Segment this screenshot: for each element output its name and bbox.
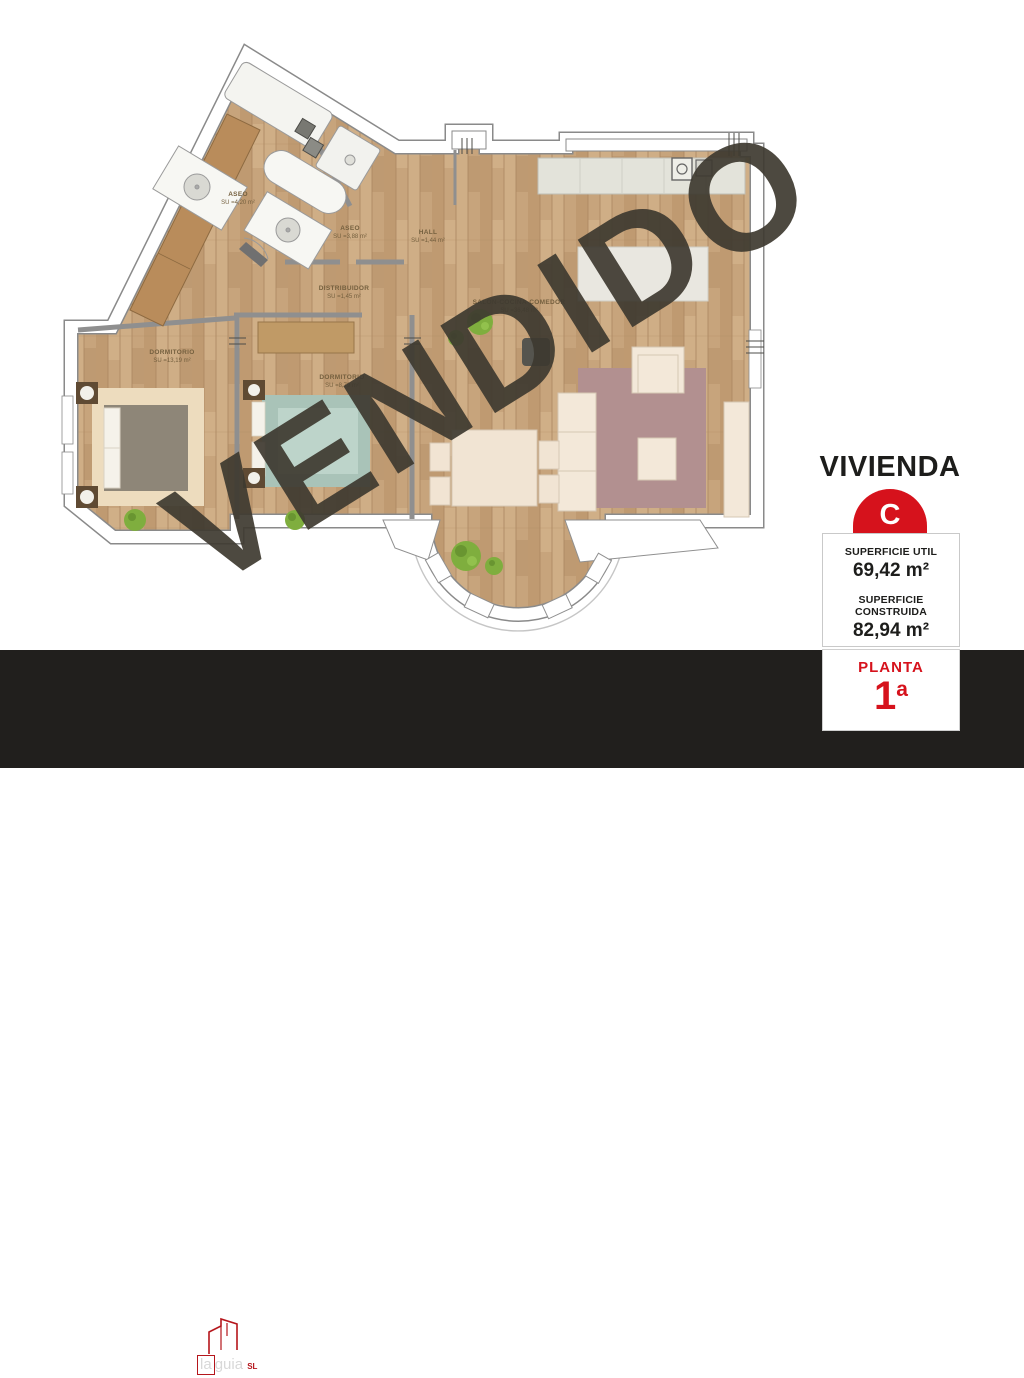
bedroom-1 [76, 382, 204, 508]
wardrobe [258, 322, 354, 353]
flyer-page: { "plan": { "watermark": "VENDIDO", "roo… [0, 0, 1024, 768]
room-label: DORMITORIO SU =13,19 m² [112, 348, 232, 365]
room-area: SU =1,44 m² [368, 237, 488, 245]
surface-info-box: SUPERFICIE UTIL 69,42 m² SUPERFICIE CONS… [822, 533, 960, 647]
room-area: SU =13,19 m² [112, 357, 232, 365]
brand-name: GIJÓN [103, 1350, 177, 1377]
logo-la: la [197, 1355, 215, 1375]
room-area: SU =4,20 m² [178, 199, 298, 207]
room-name: DORMITORIO [112, 348, 232, 357]
room-label: HALL SU =1,44 m² [368, 228, 488, 245]
room-area: SU =36,48 m² [449, 307, 589, 315]
building-outline-icon [205, 1316, 257, 1356]
sink-icon [672, 158, 692, 180]
unit-letter: C [880, 499, 901, 531]
superficie-construida-label: SUPERFICIE CONSTRUIDA [823, 594, 959, 618]
coffee-table [638, 438, 676, 480]
superficie-util-value: 69,42 m² [823, 560, 959, 582]
hob-icon [696, 160, 712, 176]
superficie-util-label: SUPERFICIE UTIL [823, 546, 959, 558]
laguia-logo-text: laguia SL [197, 1356, 257, 1373]
planta-number: 1 [874, 674, 896, 718]
sofa [558, 393, 596, 511]
superficie-construida-value: 82,94 m² [823, 620, 959, 642]
room-name: DORMITORIO [282, 373, 402, 382]
pillows [252, 402, 265, 436]
room-area: SU =1,45 m² [284, 293, 404, 301]
estado-label: ESTADO REFORMADO [657, 1355, 793, 1367]
chair [539, 441, 559, 469]
room-name: HALL [368, 228, 488, 237]
laguia-logo: laguia SL [197, 1316, 307, 1378]
room-name: ASEO [178, 190, 298, 199]
planta-box: PLANTA 1a [822, 649, 960, 731]
bedroom-2 [243, 322, 370, 488]
logo-guia: guia [215, 1356, 243, 1373]
vivienda-title: VIVIENDA [816, 451, 964, 484]
room-name: SALÓN-COCINA-COMEDOR [449, 298, 589, 307]
sideboard [724, 402, 749, 517]
room-area: SU =8,79 m² [282, 382, 402, 390]
tv-unit [522, 338, 550, 366]
armchair [632, 347, 684, 393]
logo-sl: SL [247, 1362, 257, 1371]
chair [430, 477, 450, 505]
planta-ordinal: a [896, 678, 908, 701]
room-label: DISTRIBUIDOR SU =1,45 m² [284, 284, 404, 301]
chair [539, 475, 559, 503]
room-name: DISTRIBUIDOR [284, 284, 404, 293]
dining-table [452, 430, 537, 506]
room-label: SALÓN-COCINA-COMEDOR SU =36,48 m² [449, 298, 589, 315]
room-label: DORMITORIO SU =8,79 m² [282, 373, 402, 390]
chair [430, 443, 450, 471]
room-label: ASEO SU =4,20 m² [178, 190, 298, 207]
building-address: Edificio Avda. Portugal 17 [572, 1330, 793, 1351]
kitchen-island [578, 247, 708, 301]
